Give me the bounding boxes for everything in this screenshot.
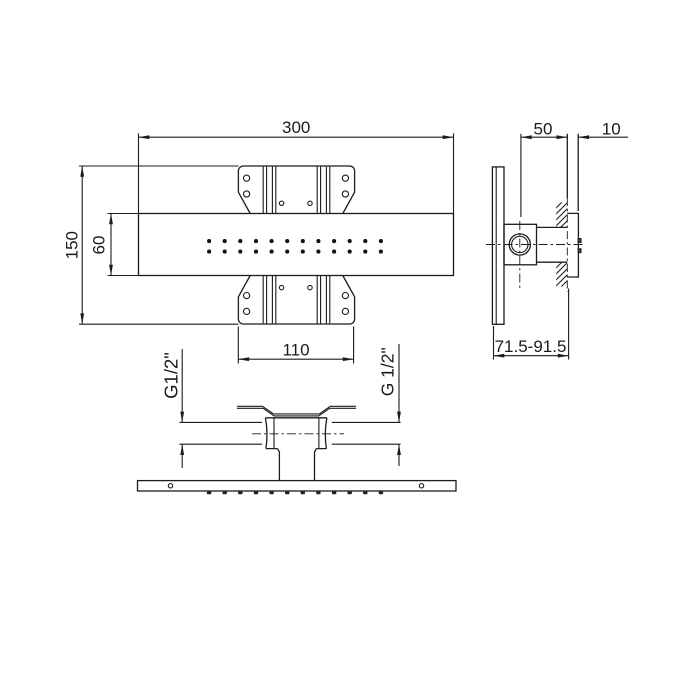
svg-text:300: 300 [282, 118, 310, 137]
svg-text:71.5-91.5: 71.5-91.5 [495, 337, 567, 356]
svg-text:150: 150 [63, 231, 82, 259]
svg-text:50: 50 [534, 119, 553, 138]
svg-text:110: 110 [282, 340, 309, 359]
svg-text:10: 10 [602, 119, 621, 138]
svg-text:G1/2": G1/2" [161, 352, 182, 399]
svg-text:G 1/2": G 1/2" [378, 347, 398, 396]
svg-text:60: 60 [90, 236, 109, 255]
